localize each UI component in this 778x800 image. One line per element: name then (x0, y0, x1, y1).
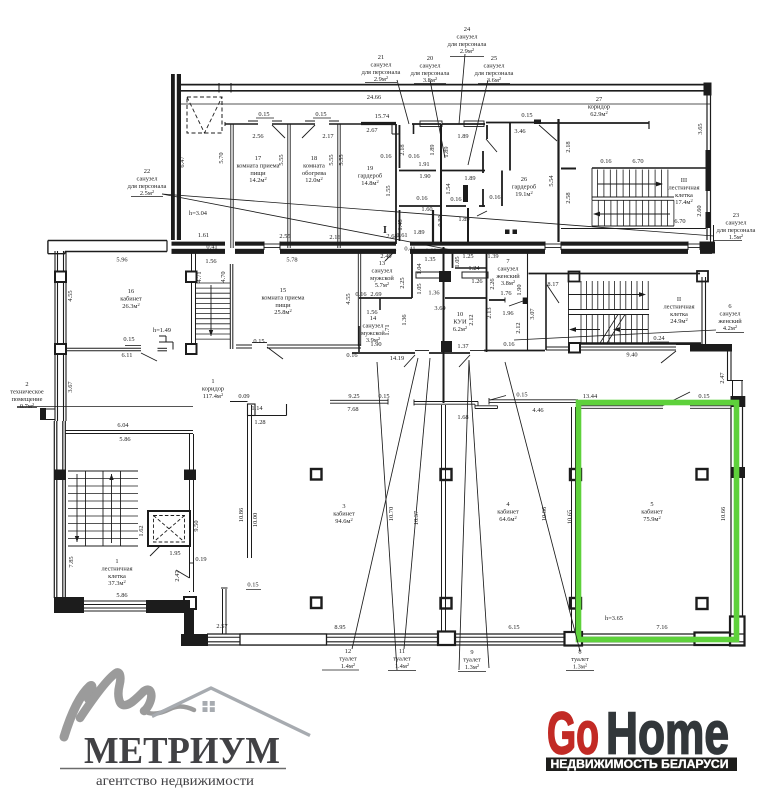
svg-text:0.09: 0.09 (238, 393, 249, 400)
svg-text:0.15: 0.15 (378, 393, 389, 400)
svg-text:10.66: 10.66 (720, 507, 727, 521)
svg-text:h=3.65: h=3.65 (605, 615, 623, 622)
svg-text:5.86: 5.86 (119, 436, 130, 443)
svg-text:8: 8 (578, 649, 581, 656)
svg-text:94.6м2: 94.6м2 (335, 517, 352, 525)
svg-text:Home: Home (606, 701, 729, 767)
svg-text:лестничная: лестничная (101, 565, 132, 572)
svg-text:5.55: 5.55 (338, 154, 345, 165)
svg-text:5.86: 5.86 (116, 592, 127, 599)
svg-text:9.50: 9.50 (193, 520, 200, 531)
svg-text:1: 1 (211, 378, 214, 385)
svg-text:10.65: 10.65 (567, 510, 574, 524)
svg-text:1.89: 1.89 (464, 175, 475, 182)
svg-text:6.70: 6.70 (632, 158, 643, 165)
svg-text:2.18: 2.18 (565, 141, 572, 152)
svg-text:3.07: 3.07 (529, 308, 536, 320)
svg-text:мужской: мужской (370, 275, 394, 282)
svg-text:для персонала: для персонала (717, 227, 756, 234)
svg-text:1.28: 1.28 (254, 419, 265, 426)
svg-text:для персонала: для персонала (362, 69, 401, 76)
svg-text:0.16: 0.16 (408, 153, 419, 160)
svg-text:7.68: 7.68 (347, 406, 358, 413)
svg-text:6.70: 6.70 (674, 218, 685, 225)
svg-text:0.16: 0.16 (503, 341, 514, 348)
svg-text:117.4м2: 117.4м2 (203, 392, 223, 400)
svg-text:h=1.49: h=1.49 (153, 327, 171, 334)
svg-text:4.55: 4.55 (67, 290, 74, 301)
svg-text:1.56: 1.56 (366, 309, 377, 316)
svg-text:II: II (677, 296, 681, 303)
svg-text:0.15: 0.15 (123, 336, 134, 343)
svg-text:гардероб: гардероб (358, 172, 383, 179)
svg-text:17.4м2: 17.4м2 (675, 198, 692, 206)
svg-text:12.0м2: 12.0м2 (305, 176, 322, 184)
svg-text:19.1м2: 19.1м2 (515, 190, 532, 198)
svg-text:1.14: 1.14 (251, 405, 263, 412)
svg-text:0.16: 0.16 (600, 158, 611, 165)
svg-text:3.67: 3.67 (67, 381, 74, 393)
svg-text:санузел: санузел (484, 62, 506, 69)
svg-text:10.66: 10.66 (541, 507, 548, 521)
svg-text:14.2м2: 14.2м2 (249, 176, 266, 184)
svg-text:14: 14 (370, 315, 377, 322)
svg-text:5: 5 (650, 501, 653, 508)
svg-text:1.60: 1.60 (421, 206, 432, 213)
svg-text:1.26: 1.26 (471, 278, 482, 285)
svg-text:2.18: 2.18 (399, 144, 406, 155)
svg-text:0.15: 0.15 (247, 582, 258, 589)
svg-text:0.15: 0.15 (253, 338, 264, 345)
svg-text:мужской: мужской (361, 330, 385, 337)
svg-text:10.70: 10.70 (388, 507, 395, 521)
svg-text:для персонала: для персонала (128, 183, 167, 190)
svg-text:санузел: санузел (726, 219, 748, 226)
svg-text:9.40: 9.40 (626, 352, 637, 359)
svg-text:1.89: 1.89 (457, 133, 468, 140)
svg-text:1.89: 1.89 (425, 248, 436, 255)
svg-text:10.86: 10.86 (238, 508, 245, 522)
svg-text:6: 6 (728, 303, 731, 310)
svg-text:1.39: 1.39 (487, 253, 498, 260)
svg-text:1.89: 1.89 (458, 216, 469, 223)
svg-text:37.3м2: 37.3м2 (108, 579, 125, 587)
svg-text:3.46: 3.46 (514, 128, 525, 135)
svg-text:лестничная: лестничная (668, 184, 699, 191)
svg-text:1.36: 1.36 (428, 290, 439, 297)
svg-text:1.91: 1.91 (418, 161, 429, 168)
svg-text:5.96: 5.96 (116, 257, 127, 264)
svg-text:13.44: 13.44 (583, 393, 598, 400)
svg-text:12: 12 (345, 648, 351, 655)
svg-text:4.55: 4.55 (345, 293, 352, 304)
svg-text:1.90: 1.90 (419, 173, 430, 180)
svg-text:11: 11 (399, 648, 405, 655)
svg-text:для персонала: для персонала (475, 70, 514, 77)
svg-text:8.17: 8.17 (547, 281, 559, 288)
svg-text:21: 21 (378, 54, 384, 61)
svg-text:5.78: 5.78 (286, 257, 297, 264)
svg-text:0.15: 0.15 (516, 392, 527, 399)
svg-text:7.16: 7.16 (656, 624, 667, 631)
svg-text:6.15: 6.15 (508, 624, 519, 631)
svg-text:26.3м2: 26.3м2 (122, 302, 139, 310)
svg-text:0.15: 0.15 (315, 111, 326, 118)
svg-text:2.26: 2.26 (489, 278, 496, 289)
svg-text:62.9м2: 62.9м2 (590, 110, 607, 118)
svg-text:комната приема: комната приема (261, 294, 304, 301)
svg-text:2: 2 (25, 381, 28, 388)
svg-text:0.24: 0.24 (653, 335, 665, 342)
svg-text:1.90: 1.90 (516, 284, 523, 295)
svg-text:1.90: 1.90 (370, 341, 381, 348)
svg-text:9.25: 9.25 (348, 393, 359, 400)
svg-text:8.95: 8.95 (334, 624, 345, 631)
svg-text:5.55: 5.55 (328, 154, 335, 165)
svg-text:16: 16 (128, 288, 134, 295)
svg-text:1.24: 1.24 (468, 265, 480, 272)
svg-text:5.54: 5.54 (548, 175, 555, 187)
svg-text:2.12: 2.12 (515, 322, 522, 333)
svg-text:0.41: 0.41 (404, 246, 415, 253)
svg-text:27: 27 (596, 96, 603, 103)
svg-text:64.6м2: 64.6м2 (499, 515, 516, 523)
svg-text:санузел: санузел (372, 267, 394, 274)
svg-text:санузел: санузел (420, 62, 442, 69)
svg-text:4.70: 4.70 (220, 271, 227, 282)
svg-text:17: 17 (255, 155, 262, 162)
svg-text:0.16: 0.16 (489, 194, 500, 201)
svg-text:2.60: 2.60 (696, 205, 703, 216)
svg-text:2.69: 2.69 (370, 291, 381, 298)
svg-text:2.12: 2.12 (468, 314, 475, 325)
svg-text:24: 24 (464, 26, 471, 33)
svg-text:1.36: 1.36 (401, 314, 408, 325)
svg-text:для персонала: для персонала (448, 41, 487, 48)
svg-text:санузел: санузел (363, 322, 385, 329)
svg-text:1.89: 1.89 (429, 144, 436, 155)
svg-text:13: 13 (379, 260, 385, 267)
svg-text:2.55: 2.55 (279, 233, 290, 240)
svg-text:гардероб: гардероб (512, 183, 537, 190)
svg-text:0.16: 0.16 (355, 291, 366, 298)
svg-text:14.8м2: 14.8м2 (361, 179, 378, 187)
svg-text:техническое: техническое (10, 388, 44, 395)
svg-text:18: 18 (311, 155, 317, 162)
svg-text:19: 19 (367, 165, 373, 172)
svg-text:10.37: 10.37 (413, 510, 420, 525)
svg-text:10.00: 10.00 (252, 513, 259, 527)
svg-text:0.15: 0.15 (521, 112, 532, 119)
svg-text:0.16: 0.16 (450, 196, 461, 203)
svg-text:24.9м2: 24.9м2 (670, 317, 687, 325)
svg-text:5.55: 5.55 (278, 154, 285, 165)
svg-text:1.54: 1.54 (445, 183, 452, 195)
svg-text:3: 3 (342, 503, 345, 510)
svg-text:0.16: 0.16 (346, 352, 357, 359)
svg-text:2.58: 2.58 (565, 192, 572, 203)
svg-text:23: 23 (733, 212, 739, 219)
svg-text:4.71: 4.71 (196, 271, 203, 282)
svg-text:10: 10 (457, 311, 463, 318)
svg-text:2.16: 2.16 (329, 234, 340, 241)
svg-text:2.47: 2.47 (719, 372, 726, 384)
svg-text:0.16: 0.16 (416, 195, 427, 202)
svg-text:1.96: 1.96 (502, 310, 513, 317)
svg-text:2.67: 2.67 (366, 127, 378, 134)
svg-text:4.46: 4.46 (532, 407, 543, 414)
svg-text:1: 1 (115, 558, 118, 565)
svg-text:лестничная: лестничная (663, 303, 694, 310)
svg-text:1.37: 1.37 (457, 343, 469, 350)
svg-text:1.35: 1.35 (424, 256, 435, 263)
svg-text:1.25: 1.25 (462, 253, 473, 260)
svg-text:женский: женский (495, 273, 520, 280)
svg-text:1.61: 1.61 (396, 232, 407, 239)
svg-text:1.95: 1.95 (169, 550, 180, 557)
svg-text:помещение: помещение (12, 396, 43, 403)
svg-text:комната приема: комната приема (236, 162, 279, 169)
svg-text:1.48: 1.48 (397, 219, 404, 230)
svg-text:0.16: 0.16 (380, 153, 391, 160)
svg-text:24.66: 24.66 (367, 94, 381, 101)
svg-text:1.61: 1.61 (198, 232, 209, 239)
svg-text:1.89: 1.89 (413, 229, 424, 236)
svg-text:6.47: 6.47 (179, 156, 186, 168)
svg-text:агентство недвижимости: агентство недвижимости (96, 774, 255, 789)
svg-text:h=3.04: h=3.04 (189, 210, 208, 217)
svg-text:женский: женский (717, 318, 742, 325)
svg-text:санузел: санузел (457, 33, 479, 40)
svg-text:1.04: 1.04 (416, 263, 423, 275)
svg-text:6.04: 6.04 (117, 422, 129, 429)
svg-text:2.17: 2.17 (322, 133, 334, 140)
svg-text:20: 20 (427, 55, 433, 62)
svg-text:комната: комната (303, 162, 325, 169)
svg-text:санузел: санузел (720, 310, 742, 317)
svg-text:2.25: 2.25 (399, 277, 406, 288)
svg-text:0.15: 0.15 (258, 111, 269, 118)
svg-text:1.89: 1.89 (443, 146, 450, 157)
svg-text:6.11: 6.11 (122, 352, 133, 359)
svg-text:для персонала: для персонала (411, 70, 450, 77)
svg-text:2.13: 2.13 (486, 307, 493, 318)
svg-text:3.69: 3.69 (434, 305, 445, 312)
svg-text:25: 25 (491, 55, 497, 62)
svg-text:санузел: санузел (371, 61, 393, 68)
svg-text:0.19: 0.19 (195, 556, 206, 563)
svg-text:1.62: 1.62 (138, 525, 145, 536)
svg-text:5.70: 5.70 (218, 152, 225, 163)
svg-text:14.19: 14.19 (390, 355, 404, 362)
svg-text:0.80: 0.80 (437, 215, 444, 226)
svg-text:2.57: 2.57 (216, 623, 228, 630)
svg-text:0.15: 0.15 (698, 393, 709, 400)
svg-text:22: 22 (144, 168, 150, 175)
svg-text:санузел: санузел (498, 265, 520, 272)
svg-text:75.9м2: 75.9м2 (643, 515, 660, 523)
svg-text:НЕДВИЖИМОСТЬ БЕЛАРУСИ: НЕДВИЖИМОСТЬ БЕЛАРУСИ (551, 759, 729, 771)
svg-text:26: 26 (521, 176, 527, 183)
svg-text:2.47: 2.47 (174, 570, 181, 582)
svg-text:2.49: 2.49 (380, 253, 391, 260)
svg-text:7.85: 7.85 (68, 556, 75, 567)
svg-text:2.68: 2.68 (386, 233, 397, 240)
svg-text:2.56: 2.56 (252, 133, 263, 140)
svg-text:1.56: 1.56 (205, 258, 216, 265)
svg-text:санузел: санузел (137, 175, 159, 182)
svg-text:III: III (681, 177, 687, 184)
svg-text:1.05: 1.05 (416, 283, 423, 294)
svg-text:МЕТРИУМ: МЕТРИУМ (84, 730, 280, 772)
svg-text:1.68: 1.68 (457, 414, 468, 421)
svg-text:Go: Go (547, 701, 599, 767)
svg-text:15.74: 15.74 (375, 113, 390, 120)
svg-text:9: 9 (470, 649, 473, 656)
svg-text:15: 15 (280, 287, 286, 294)
svg-text:3.65: 3.65 (697, 123, 704, 134)
svg-text:1.76: 1.76 (500, 290, 511, 297)
svg-text:1.05: 1.05 (454, 256, 461, 267)
svg-text:1.71: 1.71 (384, 324, 391, 335)
svg-text:0.41: 0.41 (206, 244, 217, 251)
svg-text:25.8м2: 25.8м2 (274, 308, 291, 316)
svg-text:1.55: 1.55 (385, 185, 392, 196)
